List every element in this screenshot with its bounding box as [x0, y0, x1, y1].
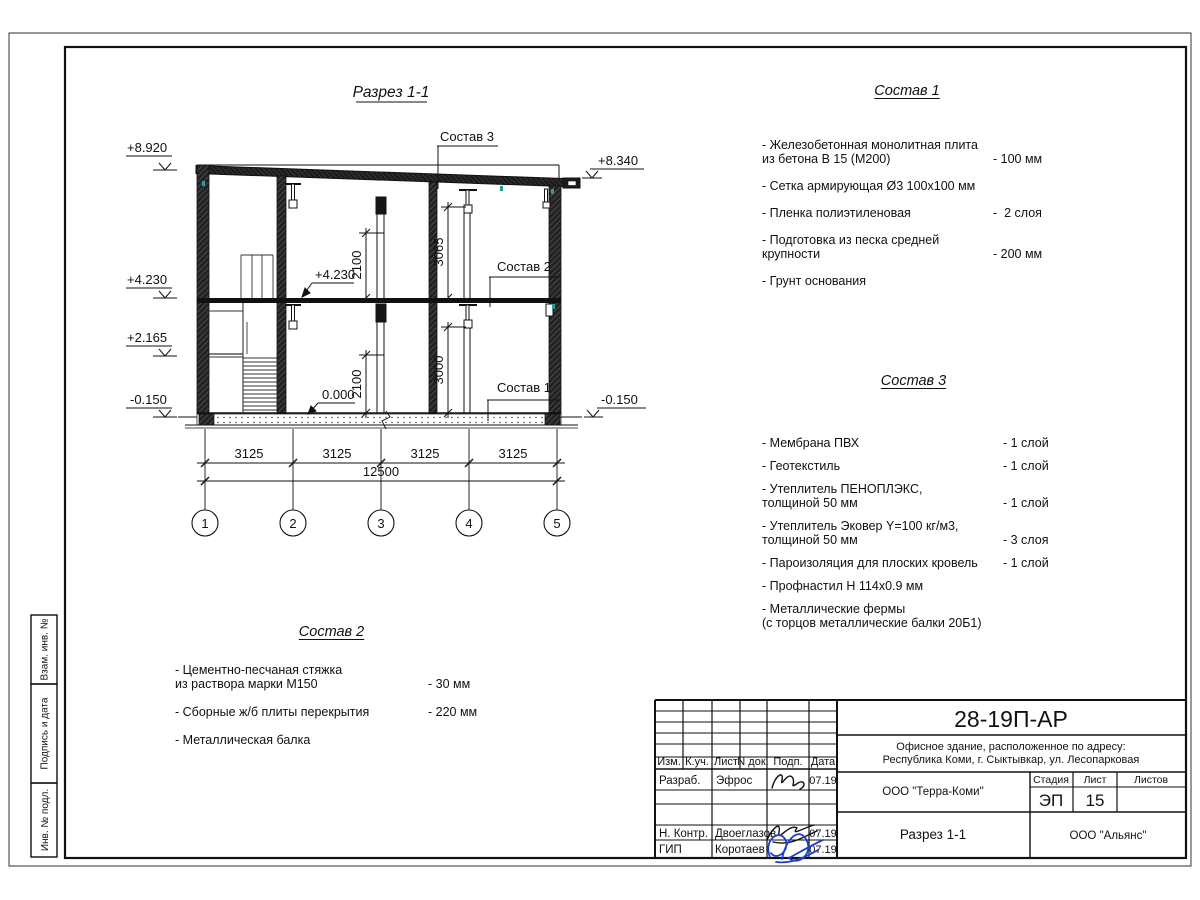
item-value: - 1 слой: [1003, 459, 1065, 473]
item-name: - Утеплитель Эковер Y=100 кг/м3, толщино…: [762, 519, 1003, 547]
item-name: - Металлическая балка: [175, 733, 428, 747]
item-name: - Профнастил Н 114х0.9 мм: [762, 579, 1003, 593]
composition-list-1: Состав 1 - Железобетонная монолитная пли…: [762, 84, 1052, 301]
callout-sostav-3: Состав 3: [440, 129, 494, 144]
list-item: - Пленка полиэтиленовая- 2 слоя: [762, 206, 1052, 220]
composition-list-2: Состав 2 - Цементно-песчаная стяжка из р…: [175, 625, 488, 761]
annotation-4230: +4.230: [315, 267, 355, 282]
partitions: [376, 197, 470, 413]
composition-2-title: Состав 2: [175, 625, 488, 639]
tb-object-line2: Республика Коми, г. Сыктывкар, ул. Лесоп…: [883, 754, 1140, 766]
tb-org-customer: ООО "Альянс": [1070, 830, 1147, 842]
tb-object-line1: Офисное здание, расположенное по адресу:: [896, 741, 1125, 753]
roof-slab: [196, 166, 563, 187]
list-item: - Утеплитель ПЕНОПЛЭКС, толщиной 50 мм- …: [762, 482, 1065, 510]
dim-3125-3: 3125: [411, 446, 440, 461]
elevation-8340: +8.340: [598, 153, 638, 168]
section-view: Разрез 1-1: [178, 84, 582, 429]
signature-razrab: [772, 775, 804, 789]
margin-stamp-labels: Взам. инв. № Подпись и дата Инв. № подл.: [40, 618, 52, 851]
elevation-8920: +8.920: [127, 140, 167, 155]
vertical-dimensions: [359, 202, 466, 418]
elevation-m0150-right: -0.150: [601, 392, 638, 407]
axis-bubble-3: 3: [377, 516, 384, 531]
floor-slab-2: [197, 298, 561, 303]
list-item: - Профнастил Н 114х0.9 мм: [762, 579, 1065, 593]
elevation-m0150-left: -0.150: [130, 392, 167, 407]
item-name: - Металлические фермы (с торцов металлич…: [762, 602, 1003, 630]
tb-sheets-label: Листов: [1134, 774, 1169, 786]
tb-sheet-label: Лист: [1084, 774, 1107, 786]
tb-role-nkontr: Н. Контр.: [659, 828, 708, 840]
list-item: - Утеплитель Эковер Y=100 кг/м3, толщино…: [762, 519, 1065, 547]
dim-3125-1: 3125: [235, 446, 264, 461]
list-item: - Пароизоляция для плоских кровель- 1 сл…: [762, 556, 1065, 570]
item-value: - 3 слоя: [1003, 533, 1065, 547]
margin-label-podpis: Подпись и дата: [40, 697, 51, 769]
wall-axis-1: [197, 165, 209, 414]
tb-col-izm: Изм.: [657, 756, 681, 768]
axis-bubble-1: 1: [201, 516, 208, 531]
item-name: - Грунт основания: [762, 274, 993, 288]
item-value: - 1 слой: [1003, 436, 1065, 450]
callout-sostav-1: Состав 1: [497, 380, 551, 395]
tb-role-gip: ГИП: [659, 844, 682, 856]
tb-date-2: 07.19: [809, 828, 837, 840]
tb-stage-value: ЭП: [1039, 791, 1063, 810]
tb-col-podp: Подп.: [773, 756, 802, 768]
list-item: - Железобетонная монолитная плита из бет…: [762, 138, 1052, 166]
tb-col-list: Лист: [714, 756, 738, 768]
item-name: - Утеплитель ПЕНОПЛЭКС, толщиной 50 мм: [762, 482, 1003, 510]
composition-3-title: Состав 3: [762, 374, 1065, 388]
item-value: - 1 слой: [1003, 496, 1065, 510]
tb-org-design: ООО "Терра-Коми": [882, 786, 983, 798]
tb-sheet-title: Разрез 1-1: [900, 827, 966, 842]
dim-12500: 12500: [363, 464, 399, 479]
axis-bubble-4: 4: [465, 516, 472, 531]
title-block: Изм. К.уч. Лист N док. Подп. Дата 07.19 …: [655, 700, 1186, 862]
list-item: - Подготовка из песка средней крупности-…: [762, 233, 1052, 261]
margin-label-inv: Инв. № подл.: [40, 789, 51, 851]
item-name: - Пароизоляция для плоских кровель: [762, 556, 1003, 570]
dim-3000: 3000: [431, 356, 446, 385]
tb-document-code: 28-19П-АР: [954, 706, 1068, 732]
item-value: - 2 слоя: [993, 206, 1052, 220]
elevation-4230-left: +4.230: [127, 272, 167, 287]
list-item: - Грунт основания: [762, 274, 1052, 288]
composition-callouts: Состав 3 Состав 2 Состав 1: [437, 129, 560, 421]
list-item: - Металлическая балка: [175, 733, 488, 747]
item-value: - 30 мм: [428, 677, 488, 691]
item-name: - Сетка армирующая Ø3 100х100 мм: [762, 179, 993, 193]
wall-axis-2: [277, 176, 286, 414]
list-item: - Сетка армирующая Ø3 100х100 мм: [762, 179, 1052, 193]
list-item: - Мембрана ПВХ- 1 слой: [762, 436, 1065, 450]
dim-3125-2: 3125: [323, 446, 352, 461]
tb-sheet-number: 15: [1086, 791, 1105, 810]
list-item: - Сборные ж/б плиты перекрытия- 220 мм: [175, 705, 488, 719]
drawing-sheet: Взам. инв. № Подпись и дата Инв. № подл.…: [0, 0, 1200, 900]
item-value: - 100 мм: [993, 152, 1052, 166]
tb-col-ndok: N док.: [737, 756, 768, 768]
list-item: - Металлические фермы (с торцов металлич…: [762, 602, 1065, 630]
tb-date-1: 07.19: [809, 775, 837, 787]
tb-name-razrab: Эфрос: [716, 775, 753, 787]
item-name: - Железобетонная монолитная плита из бет…: [762, 138, 993, 166]
item-value: - 220 мм: [428, 705, 488, 719]
hangers: [286, 184, 553, 329]
item-name: - Цементно-песчаная стяжка из раствора м…: [175, 663, 428, 691]
stairs: [203, 255, 277, 413]
tb-stage-label: Стадия: [1033, 774, 1069, 786]
composition-list-3: Состав 3 - Мембрана ПВХ- 1 слой - Геотек…: [762, 374, 1065, 639]
item-name: - Геотекстиль: [762, 459, 1003, 473]
tb-name-gip: Коротаев: [715, 844, 765, 856]
tb-col-kuch: К.уч.: [685, 756, 709, 768]
list-item: - Геотекстиль- 1 слой: [762, 459, 1065, 473]
tb-name-nkontr: Двоеглазов: [715, 828, 776, 840]
section-title: Разрез 1-1: [353, 84, 430, 101]
annotation-0000: 0.000: [322, 387, 355, 402]
composition-1-title: Состав 1: [762, 84, 1052, 98]
tb-col-data: Дата: [811, 756, 836, 768]
item-name: - Подготовка из песка средней крупности: [762, 233, 993, 261]
tb-role-razrab: Разраб.: [659, 775, 700, 787]
callout-sostav-2: Состав 2: [497, 259, 551, 274]
list-item: - Цементно-песчаная стяжка из раствора м…: [175, 663, 488, 691]
ground-floor: [178, 411, 582, 429]
item-name: - Пленка полиэтиленовая: [762, 206, 993, 220]
axis-bubble-5: 5: [553, 516, 560, 531]
elevation-2165: +2.165: [127, 330, 167, 345]
item-value: - 200 мм: [993, 247, 1052, 261]
dim-3125-4: 3125: [499, 446, 528, 461]
dim-3065: 3065: [431, 238, 446, 267]
item-name: - Сборные ж/б плиты перекрытия: [175, 705, 428, 719]
item-name: - Мембрана ПВХ: [762, 436, 1003, 450]
margin-label-vzam: Взам. инв. №: [40, 618, 51, 680]
axis-bubble-2: 2: [289, 516, 296, 531]
tb-date-3: 07.19: [809, 844, 837, 856]
item-value: - 1 слой: [1003, 556, 1065, 570]
